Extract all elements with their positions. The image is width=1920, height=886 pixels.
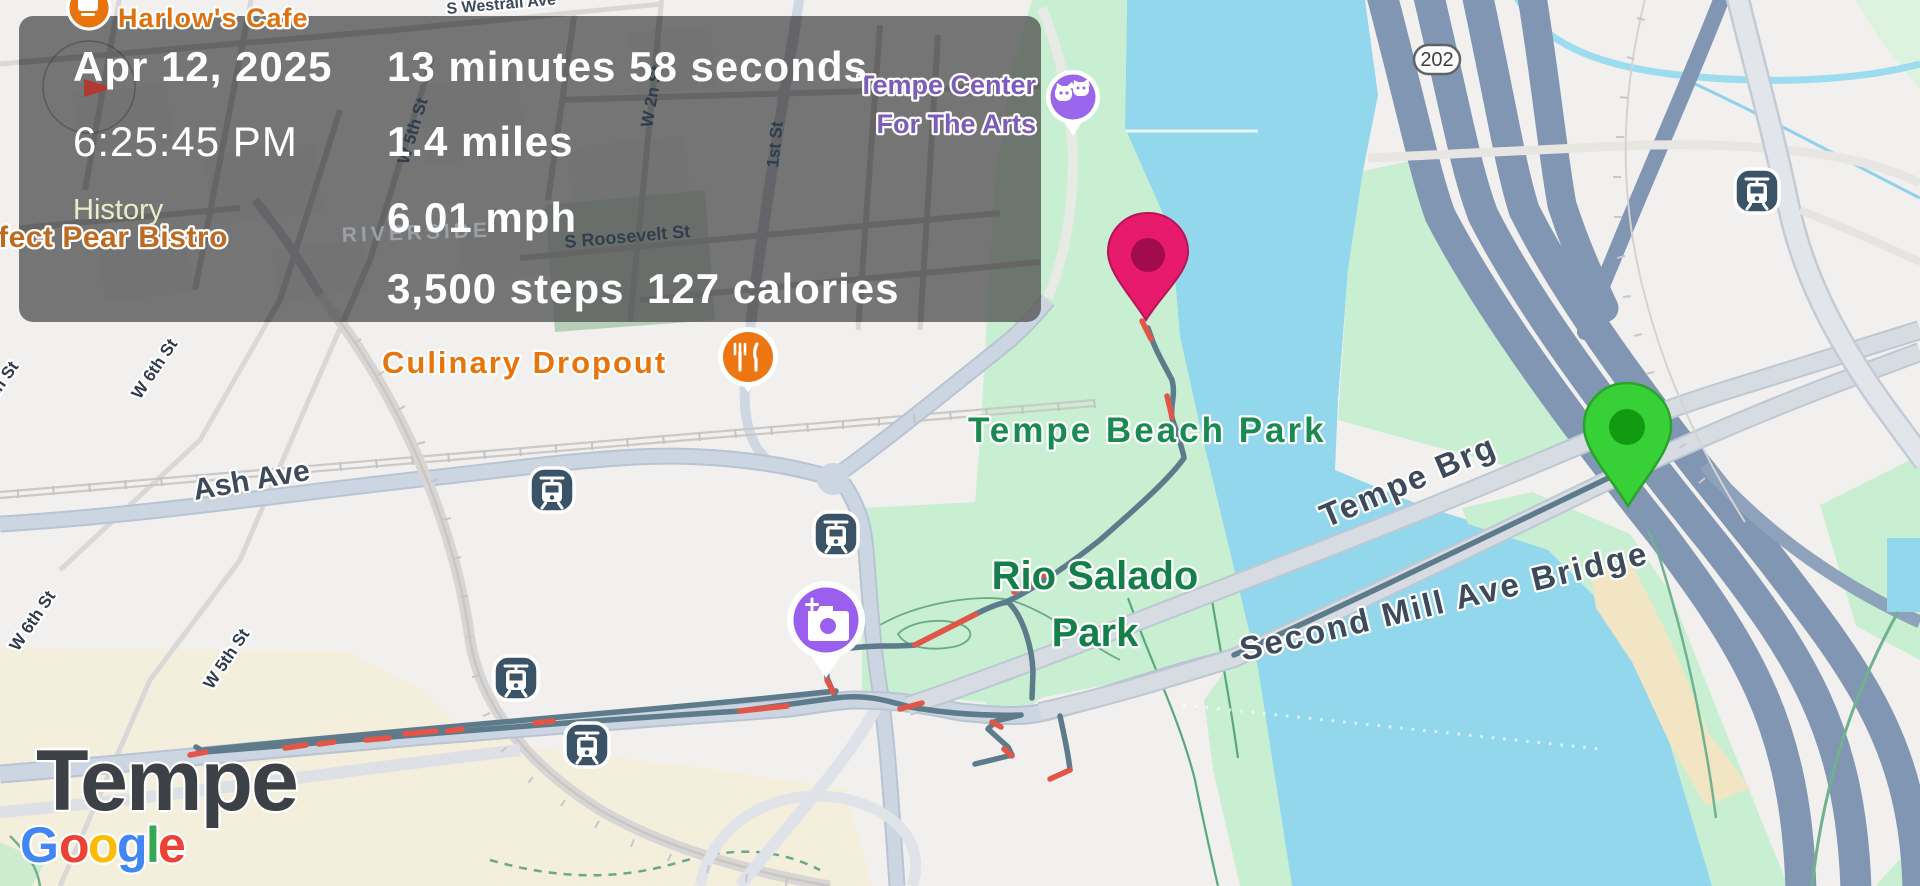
svg-text:3,500 steps: 3,500 steps [387,265,625,312]
svg-text:e: e [158,817,186,873]
svg-text:Tempe: Tempe [36,733,297,829]
svg-text:For The Arts: For The Arts [876,109,1036,139]
svg-text:g: g [117,817,148,873]
svg-text:Culinary Dropout: Culinary Dropout [382,345,667,380]
svg-text:Tempe Beach Park: Tempe Beach Park [968,411,1327,450]
svg-text:o: o [59,817,90,873]
svg-text:Rio Salado: Rio Salado [992,554,1199,598]
svg-text:Harlow's Cafe: Harlow's Cafe [118,3,308,33]
svg-text:1.4 miles: 1.4 miles [387,118,573,165]
svg-text:History: History [73,194,164,226]
svg-text:Apr 12, 2025: Apr 12, 2025 [73,43,333,90]
svg-text:202: 202 [1420,49,1453,71]
svg-text:Tempe Center: Tempe Center [858,70,1037,100]
svg-text:127 calories: 127 calories [647,265,900,312]
svg-text:13 minutes 58 seconds: 13 minutes 58 seconds [387,43,868,90]
svg-text:6:25:45 PM: 6:25:45 PM [73,118,298,165]
svg-text:G: G [20,817,59,873]
svg-text:Park: Park [1052,611,1139,655]
svg-text:o: o [88,817,119,873]
svg-text:6.01 mph: 6.01 mph [387,194,577,241]
